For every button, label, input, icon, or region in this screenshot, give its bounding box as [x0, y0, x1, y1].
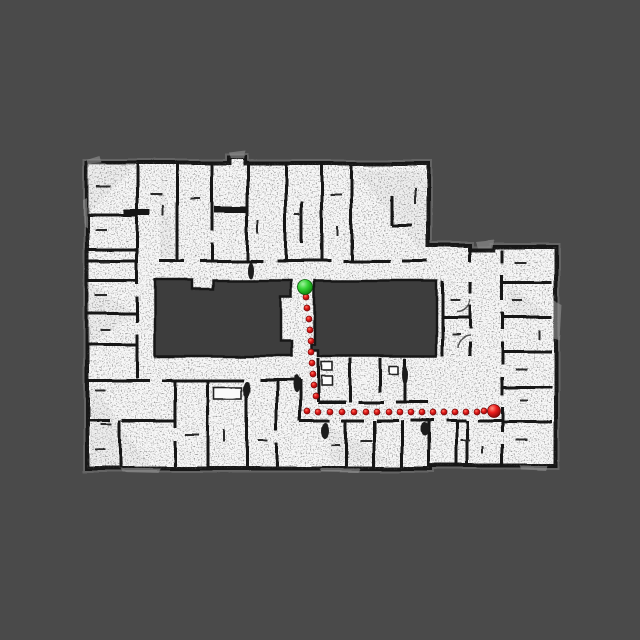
- path-dot: [419, 409, 425, 415]
- path-dot: [481, 408, 487, 414]
- path-dot: [474, 409, 480, 415]
- table-mark: [214, 387, 242, 399]
- path-dot: [304, 408, 310, 414]
- path-dot: [374, 409, 380, 415]
- path-dot: [452, 409, 458, 415]
- path-dot: [311, 382, 317, 388]
- unknown-region-right: [311, 281, 437, 356]
- path-dot: [310, 371, 316, 377]
- path-dot: [308, 349, 314, 355]
- path-dot: [304, 305, 310, 311]
- path-dot: [463, 409, 469, 415]
- path-dot: [397, 409, 403, 415]
- path-dot: [430, 409, 436, 415]
- path-dot: [386, 409, 392, 415]
- path-dot: [327, 409, 333, 415]
- path-dot: [308, 338, 314, 344]
- path-dot: [363, 409, 369, 415]
- fixture-mark: [389, 366, 398, 374]
- path-dot: [351, 409, 357, 415]
- path-dot: [306, 316, 312, 322]
- fixture-mark: [321, 362, 332, 371]
- fixture-mark: [321, 377, 332, 386]
- goal-marker[interactable]: [488, 405, 501, 418]
- unknown-region-left: [155, 280, 292, 356]
- path-dot: [441, 409, 447, 415]
- map-canvas[interactable]: [0, 0, 640, 640]
- path-dot: [309, 360, 315, 366]
- path-dot: [408, 409, 414, 415]
- path-dot: [303, 294, 309, 300]
- path-dot: [313, 393, 319, 399]
- start-marker[interactable]: [298, 280, 313, 295]
- map-viewport: [0, 0, 640, 640]
- path-dot: [315, 409, 321, 415]
- path-dot: [339, 409, 345, 415]
- path-dot: [307, 327, 313, 333]
